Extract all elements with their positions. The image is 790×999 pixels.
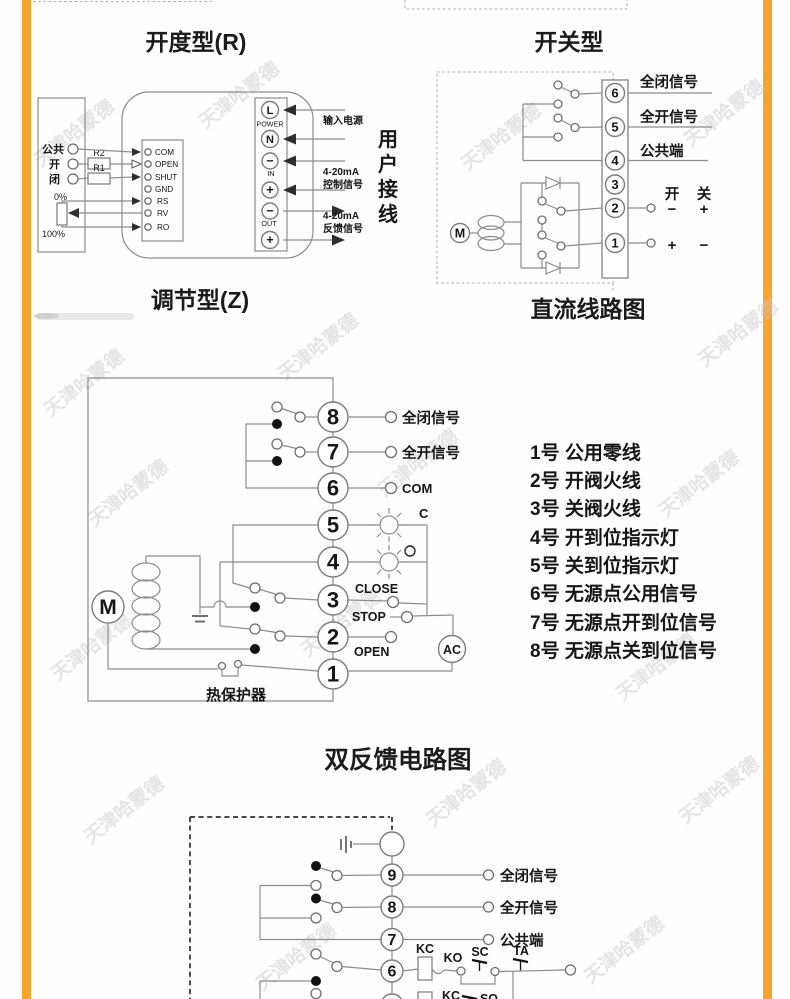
motor-winding	[132, 563, 160, 649]
double-feedback-section: M	[88, 378, 717, 774]
terminal-number: 5	[327, 513, 339, 538]
open-indicator-lamp	[348, 545, 427, 579]
wire	[78, 178, 88, 179]
legend-item: 1号 公用零线	[530, 441, 641, 464]
terminal-label: −	[266, 154, 273, 168]
legend-item: 3号 关阀火线	[530, 497, 641, 520]
terminal-number: 3	[611, 177, 618, 192]
input-terminal-label: 开	[49, 158, 60, 171]
wire-label: 反馈信号	[323, 222, 363, 235]
terminal-number: 6	[611, 86, 618, 101]
signal-label: 公共端	[640, 142, 684, 160]
terminal-number: 4	[611, 153, 619, 168]
signal-label: 全开信号	[499, 899, 558, 917]
terminal-number: 7	[388, 932, 397, 949]
arrowhead	[132, 173, 141, 181]
relay-coil	[418, 992, 432, 999]
terminal-number: 1	[327, 662, 339, 687]
ground-symbol	[341, 836, 380, 853]
controller-terminals: COM OPEN SHUT GND RS RV RO	[145, 148, 178, 232]
diode-icon	[546, 262, 560, 274]
opening-type-section: 开度型(R) 公共 开 闭 R2 R1 0% 100%	[33, 29, 398, 320]
note-char: 户	[378, 152, 398, 176]
terminal-number: 1	[611, 236, 618, 251]
watermark-text: 天津哈蒙德	[39, 345, 128, 422]
terminal-label: L	[267, 105, 274, 117]
relay-label: TA	[513, 944, 529, 958]
terminal-number: 9	[388, 868, 397, 885]
dc-terminals: 9 8 7 6 5	[381, 864, 403, 999]
enclosure-wire	[88, 378, 333, 701]
opening-type-title: 开度型(R)	[146, 29, 247, 55]
close-indicator-lamp	[348, 508, 427, 542]
watermark-text: 天津哈蒙德	[83, 455, 172, 532]
polarity-sign: +	[668, 237, 677, 254]
relay-label: SC	[471, 945, 488, 959]
left-accent-bar	[22, 0, 31, 999]
wire	[399, 603, 428, 604]
arrowhead	[132, 197, 141, 205]
lamp-label: C	[419, 506, 429, 521]
terminal-label: N	[266, 134, 274, 146]
terminal-number: 8	[327, 405, 339, 430]
terminal-number: 2	[327, 625, 339, 650]
terminal-label: SHUT	[155, 173, 177, 182]
regulating-type-subtitle: 调节型(Z)	[151, 287, 249, 313]
group-label: OUT	[261, 219, 277, 228]
wire-label: 4-20mA	[323, 167, 359, 178]
arrowhead-open	[132, 160, 141, 168]
legend-item: 7号 无源点开到位信号	[530, 611, 717, 634]
wire-end	[647, 239, 655, 247]
input-terminal-label: 闭	[49, 172, 60, 186]
terminal-number: 6	[388, 964, 397, 981]
pot-bottom-label: 100%	[42, 229, 65, 239]
relay-chain: KC KO SC TA	[403, 942, 576, 999]
open-contact	[386, 632, 397, 643]
user-wiring-note: 用 户 接 线	[378, 129, 398, 226]
legend-item: 5号 关到位指示灯	[530, 554, 679, 577]
terminal-circle	[68, 159, 78, 169]
cam-switches	[200, 402, 318, 654]
signal-label: 全闭信号	[639, 73, 698, 91]
wire-label: 4-20mA	[323, 211, 359, 222]
terminal-number: 4	[327, 550, 340, 575]
terminal-number: 8	[388, 900, 397, 917]
polarity-sign: +	[700, 201, 709, 218]
group-label: IN	[267, 169, 274, 178]
relay-label: KO	[444, 951, 463, 965]
watermark-text: 天津哈蒙德	[674, 752, 763, 829]
signal-contact	[484, 902, 494, 912]
wire	[78, 149, 132, 152]
wire-end	[647, 204, 655, 212]
double-feedback-title: 双反馈电路图	[325, 746, 472, 774]
terminal-number: 2	[611, 201, 618, 216]
motor-label: M	[99, 596, 117, 619]
note-char: 用	[378, 129, 398, 151]
wire-end	[566, 965, 576, 975]
switch-type-section: 开关型 M	[437, 29, 712, 322]
relay-label: KC	[416, 942, 434, 956]
watermark-text: 天津哈蒙德	[251, 919, 340, 996]
open-lamp-symbol	[405, 546, 415, 556]
polarity-sign: −	[700, 237, 709, 254]
switch-type-title: 开关型	[535, 29, 604, 55]
terminal-label: GND	[155, 185, 173, 194]
dc-feedback-section: 9 8 7 6 5 全闭信号 全开信号 公共端 KC KO SC	[190, 817, 576, 999]
capacitor-symbol	[192, 570, 208, 622]
motor-label: M	[455, 227, 465, 241]
resistor-r1	[88, 173, 110, 184]
signal-contact	[484, 935, 494, 945]
signal-contact	[484, 870, 494, 880]
watermark-text: 天津哈蒙德	[79, 772, 168, 849]
wire-label: 输入电源	[323, 114, 363, 127]
legend-item: 8号 无源点关到位信号	[530, 639, 717, 662]
terminal-label: +	[266, 183, 273, 197]
diode-bridge	[521, 177, 602, 274]
motor-node	[380, 832, 404, 856]
terminal-label: OPEN	[155, 160, 178, 169]
polarity-table: 开 关 − + + −	[665, 185, 712, 254]
relay-chain-cropped: KC SO	[418, 989, 498, 999]
manual-page: 天津哈蒙德 天津哈蒙德 天津哈蒙德 天津哈蒙德 天津哈蒙德 天津哈蒙德 天津哈蒙…	[0, 0, 790, 999]
ac-label: AC	[443, 643, 461, 657]
terminal-circle	[68, 144, 78, 154]
wire	[220, 562, 318, 629]
wire	[146, 556, 200, 570]
thermal-protector-label: 热保护器	[206, 686, 267, 704]
arrowhead	[132, 223, 141, 231]
group-label: POWER	[256, 120, 283, 129]
note-char: 接	[378, 178, 398, 201]
signal-label: 全开信号	[639, 108, 698, 126]
wire	[110, 177, 132, 178]
terminal-legend: 1号 公用零线 2号 开阀火线 3号 关阀火线 4号 开到位指示灯 5号 关到位…	[530, 441, 717, 662]
resistor-label: R1	[93, 163, 105, 173]
watermark-text: 天津哈蒙德	[273, 309, 362, 386]
open-label: OPEN	[354, 645, 389, 659]
legend-item: 4号 开到位指示灯	[530, 526, 679, 549]
legend-item: 6号 无源点公用信号	[530, 582, 698, 605]
terminal-label: RO	[157, 223, 169, 232]
terminal-label: RS	[157, 197, 169, 206]
relay-label: KC	[442, 989, 460, 999]
dc-circuit-subtitle: 直流线路图	[531, 296, 646, 322]
signal-label: COM	[402, 481, 432, 496]
terminal-number: 7	[327, 440, 339, 465]
signal-contact	[386, 412, 397, 423]
legend-item: 2号 开阀火线	[530, 469, 641, 492]
signal-label: 全开信号	[401, 444, 460, 462]
watermark-text: 天津哈蒙德	[46, 609, 135, 686]
stop-contact	[402, 612, 413, 623]
signal-contact	[386, 483, 397, 494]
signal-label: 全闭信号	[401, 409, 460, 427]
note-char: 线	[378, 202, 398, 226]
wiring-diagrams-canvas: 天津哈蒙德 天津哈蒙德 天津哈蒙德 天津哈蒙德 天津哈蒙德 天津哈蒙德 天津哈蒙…	[0, 0, 790, 999]
wire	[413, 615, 454, 616]
terminal-circle	[68, 174, 78, 184]
terminal-number: 5	[611, 120, 618, 135]
close-contact	[388, 597, 399, 608]
diode-icon	[546, 177, 560, 189]
terminal-label: −	[266, 204, 273, 218]
wire-label: 控制信号	[323, 178, 363, 191]
terminal-label: COM	[155, 148, 174, 157]
close-label: CLOSE	[355, 582, 398, 596]
wire	[233, 525, 318, 588]
signal-label: 全闭信号	[499, 867, 558, 885]
right-accent-bar	[763, 0, 772, 999]
linked-contact-bracket	[461, 976, 495, 984]
cropped-dashed-border-remnant	[405, 0, 627, 9]
terminal-label: RV	[157, 209, 169, 218]
power-terminals: L POWER N − IN + − OUT +	[256, 102, 283, 249]
input-terminal-label: 公共	[42, 142, 64, 156]
polarity-sign: −	[668, 201, 677, 218]
arrowhead	[132, 148, 141, 156]
wire	[348, 663, 452, 672]
stop-label: STOP	[352, 610, 386, 624]
motor-winding	[478, 216, 504, 251]
terminal-label: +	[266, 233, 273, 247]
terminal-number: 3	[327, 588, 339, 613]
relay-label: SO	[480, 992, 498, 999]
potentiometer	[57, 203, 67, 225]
signal-contact	[386, 447, 397, 458]
relay-coil	[418, 957, 432, 980]
watermark-text: 天津哈蒙德	[654, 446, 743, 523]
print-smudge	[33, 313, 59, 319]
watermark-text: 天津哈蒙德	[579, 912, 668, 989]
terminal-number: 6	[327, 476, 339, 501]
arrowhead	[68, 208, 79, 218]
